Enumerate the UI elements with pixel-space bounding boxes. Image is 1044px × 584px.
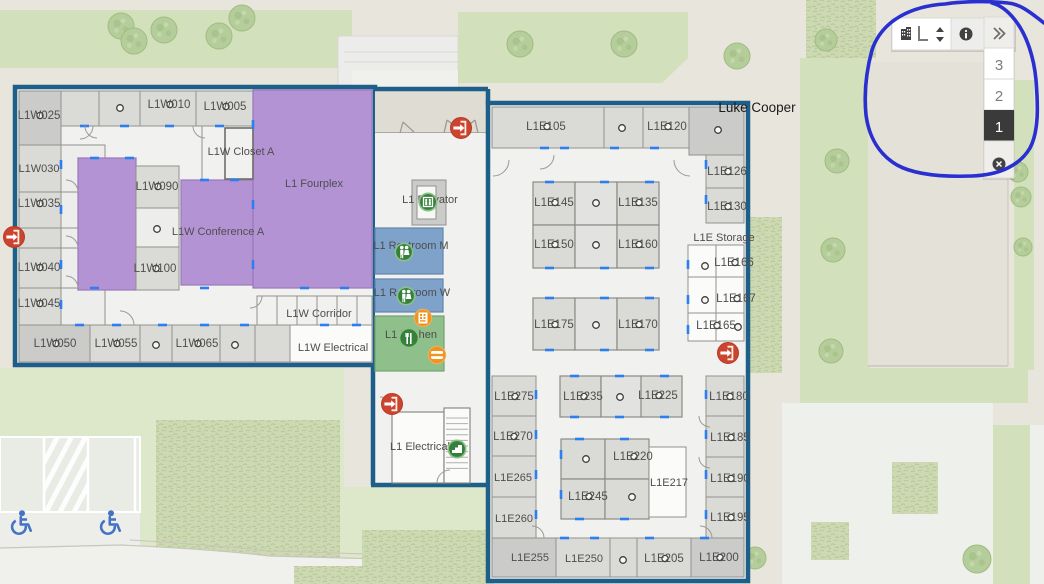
- svg-text:L1E255: L1E255: [511, 552, 549, 564]
- svg-text:2: 2: [995, 88, 1003, 105]
- svg-text:L1E Storage: L1E Storage: [693, 232, 754, 244]
- svg-text:L1E200: L1E200: [699, 552, 739, 564]
- svg-text:L1E270: L1E270: [493, 431, 533, 443]
- svg-text:L1W025: L1W025: [18, 110, 61, 122]
- svg-text:L1W045: L1W045: [18, 298, 61, 310]
- svg-text:L1E195: L1E195: [710, 512, 750, 524]
- svg-text:L1W065: L1W065: [176, 338, 219, 350]
- svg-text:L1E220: L1E220: [613, 451, 653, 463]
- svg-text:L1W100: L1W100: [134, 263, 177, 275]
- svg-text:L1E265: L1E265: [494, 472, 532, 484]
- svg-text:L1W055: L1W055: [95, 338, 138, 350]
- svg-text:L1E250: L1E250: [565, 553, 603, 565]
- svg-text:L1E205: L1E205: [644, 553, 684, 565]
- svg-text:L1E175: L1E175: [534, 319, 574, 331]
- svg-text:L1E190: L1E190: [710, 473, 750, 485]
- svg-text:L1E217: L1E217: [650, 477, 688, 489]
- svg-text:L1E130: L1E130: [707, 201, 747, 213]
- svg-text:L1E120: L1E120: [647, 121, 687, 133]
- svg-text:L1 Fourplex: L1 Fourplex: [285, 178, 344, 190]
- svg-text:L1E167: L1E167: [716, 293, 756, 305]
- svg-text:L1E180: L1E180: [709, 391, 749, 403]
- svg-text:L1E126: L1E126: [707, 166, 747, 178]
- svg-text:L1E160: L1E160: [618, 239, 658, 251]
- svg-text:1: 1: [995, 119, 1003, 136]
- svg-text:L1E170: L1E170: [618, 319, 658, 331]
- svg-text:L1E275: L1E275: [494, 391, 534, 403]
- svg-text:L1E135: L1E135: [618, 197, 658, 209]
- svg-text:L1W040: L1W040: [18, 262, 61, 274]
- svg-text:L1 Electrical: L1 Electrical: [390, 441, 450, 453]
- svg-text:L1E165: L1E165: [696, 320, 736, 332]
- svg-text:L1W035: L1W035: [18, 198, 61, 210]
- svg-text:L1W010: L1W010: [148, 99, 191, 111]
- svg-text:3: 3: [995, 57, 1003, 74]
- svg-text:L1W050: L1W050: [34, 338, 77, 350]
- svg-text:L1E225: L1E225: [638, 390, 678, 402]
- svg-text:L1W Conference A: L1W Conference A: [172, 226, 265, 238]
- svg-text:L1E166: L1E166: [714, 257, 754, 269]
- svg-text:Luke Cooper: Luke Cooper: [718, 100, 796, 115]
- svg-text:L1E185: L1E185: [710, 432, 750, 444]
- svg-text:L1W030: L1W030: [19, 163, 60, 175]
- svg-text:L1W090: L1W090: [136, 181, 179, 193]
- svg-text:L1E150: L1E150: [534, 239, 574, 251]
- svg-text:L1E145: L1E145: [534, 197, 574, 209]
- svg-text:L1E235: L1E235: [563, 391, 603, 403]
- svg-text:L1W005: L1W005: [204, 101, 247, 113]
- svg-text:L1E245: L1E245: [568, 491, 608, 503]
- svg-text:L1W Closet A: L1W Closet A: [208, 146, 275, 158]
- svg-text:L1W Corridor: L1W Corridor: [286, 308, 352, 320]
- svg-text:L1E105: L1E105: [526, 121, 566, 133]
- svg-text:L1W Electrical: L1W Electrical: [298, 342, 368, 354]
- svg-text:L1E260: L1E260: [495, 513, 533, 525]
